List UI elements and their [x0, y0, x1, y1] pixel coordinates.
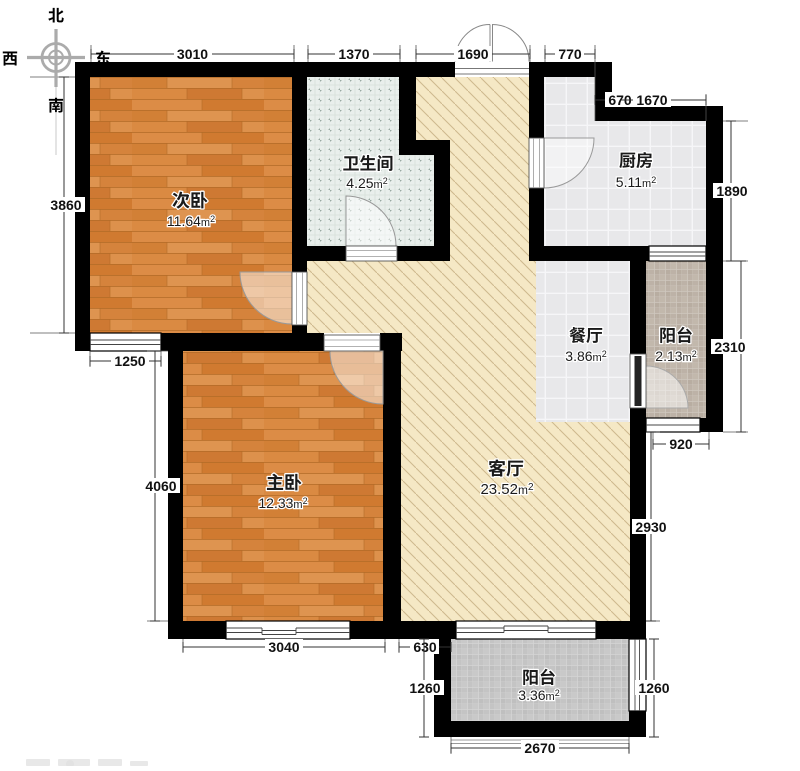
svg-text:23.52m2: 23.52m2	[480, 481, 534, 498]
svg-text:1890: 1890	[716, 183, 747, 199]
svg-text:1260: 1260	[409, 680, 440, 696]
svg-text:770: 770	[558, 46, 582, 62]
svg-text:630: 630	[413, 639, 437, 655]
svg-text:1670: 1670	[636, 92, 667, 108]
svg-text:1370: 1370	[338, 46, 369, 62]
svg-text:3010: 3010	[177, 46, 208, 62]
svg-text:1260: 1260	[638, 680, 669, 696]
svg-text:3860: 3860	[50, 197, 81, 213]
svg-text:1250: 1250	[114, 353, 145, 369]
svg-text:3040: 3040	[268, 639, 299, 655]
svg-text:1690: 1690	[457, 46, 488, 62]
svg-text:920: 920	[669, 436, 693, 452]
svg-text:4060: 4060	[145, 478, 176, 494]
svg-text:2670: 2670	[524, 740, 555, 756]
svg-text:2310: 2310	[714, 339, 745, 355]
svg-text:2930: 2930	[635, 519, 666, 535]
